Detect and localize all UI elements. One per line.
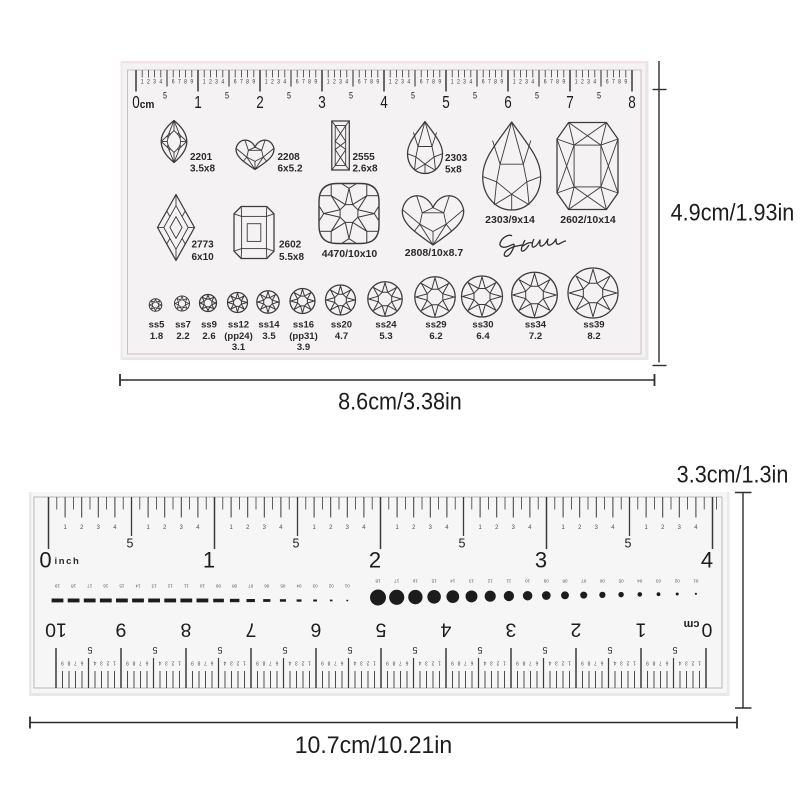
svg-text:1: 1 xyxy=(63,524,67,531)
svg-text:(pp24): (pp24) xyxy=(224,331,253,342)
svg-text:4: 4 xyxy=(483,660,486,666)
svg-text:6.4: 6.4 xyxy=(476,331,490,342)
svg-text:0: 0 xyxy=(701,618,712,640)
svg-text:3: 3 xyxy=(215,79,218,85)
svg-text:6: 6 xyxy=(420,79,423,85)
svg-text:2.6x8: 2.6x8 xyxy=(353,164,378,175)
svg-text:9: 9 xyxy=(191,660,194,666)
svg-text:5: 5 xyxy=(152,645,157,655)
svg-text:7: 7 xyxy=(659,660,662,666)
svg-text:9: 9 xyxy=(61,660,64,666)
svg-text:3: 3 xyxy=(620,660,623,666)
svg-text:1: 1 xyxy=(644,524,648,531)
svg-text:5: 5 xyxy=(473,91,477,101)
svg-text:2: 2 xyxy=(236,660,239,666)
svg-text:9: 9 xyxy=(438,79,441,85)
svg-text:8: 8 xyxy=(262,660,265,666)
svg-text:7: 7 xyxy=(364,79,367,85)
svg-text:2: 2 xyxy=(171,660,174,666)
svg-text:4: 4 xyxy=(407,79,410,85)
svg-text:4: 4 xyxy=(283,79,286,85)
svg-text:1: 1 xyxy=(141,79,144,85)
svg-text:9: 9 xyxy=(116,618,127,640)
svg-text:7: 7 xyxy=(426,79,429,85)
svg-text:8: 8 xyxy=(370,79,373,85)
svg-text:4: 4 xyxy=(158,660,161,666)
svg-text:7: 7 xyxy=(302,79,305,85)
svg-text:5: 5 xyxy=(411,91,415,101)
svg-text:2: 2 xyxy=(106,660,109,666)
svg-text:3: 3 xyxy=(339,79,342,85)
svg-text:5: 5 xyxy=(349,91,353,101)
svg-text:ss5: ss5 xyxy=(149,320,166,331)
svg-text:7: 7 xyxy=(550,79,553,85)
svg-text:8: 8 xyxy=(184,79,187,85)
svg-text:cm: cm xyxy=(683,618,699,630)
svg-text:8: 8 xyxy=(246,79,249,85)
svg-text:9: 9 xyxy=(314,79,317,85)
svg-text:4: 4 xyxy=(362,524,366,531)
svg-text:08: 08 xyxy=(232,583,238,588)
svg-text:17: 17 xyxy=(87,583,93,588)
svg-text:16: 16 xyxy=(103,583,109,588)
svg-text:09: 09 xyxy=(216,583,222,588)
svg-text:9: 9 xyxy=(376,79,379,85)
svg-text:4: 4 xyxy=(345,79,348,85)
svg-text:3: 3 xyxy=(512,524,516,531)
svg-text:3: 3 xyxy=(295,660,298,666)
svg-text:6x10: 6x10 xyxy=(192,252,215,263)
svg-text:2: 2 xyxy=(333,79,336,85)
svg-text:6: 6 xyxy=(665,660,668,666)
svg-text:3: 3 xyxy=(346,524,350,531)
svg-text:9: 9 xyxy=(451,660,454,666)
svg-text:10.7cm/10.21in: 10.7cm/10.21in xyxy=(295,732,452,759)
svg-text:1: 1 xyxy=(698,660,701,666)
svg-text:2: 2 xyxy=(581,79,584,85)
svg-text:5.3: 5.3 xyxy=(379,331,392,342)
svg-text:ss7: ss7 xyxy=(175,320,191,331)
svg-text:4470/10x10: 4470/10x10 xyxy=(322,248,378,260)
svg-text:2208: 2208 xyxy=(278,152,301,163)
svg-text:15: 15 xyxy=(119,583,125,588)
svg-text:5: 5 xyxy=(127,537,134,551)
svg-text:3: 3 xyxy=(97,524,101,531)
svg-text:7: 7 xyxy=(334,660,337,666)
svg-text:2: 2 xyxy=(369,547,381,572)
svg-text:3: 3 xyxy=(595,524,599,531)
svg-text:6: 6 xyxy=(405,660,408,666)
svg-text:4: 4 xyxy=(353,660,356,666)
svg-text:2602/10x14: 2602/10x14 xyxy=(560,214,616,226)
svg-text:1: 1 xyxy=(389,79,392,85)
svg-text:4: 4 xyxy=(418,660,421,666)
svg-text:5: 5 xyxy=(597,91,601,101)
svg-text:11: 11 xyxy=(506,578,511,583)
svg-text:3: 3 xyxy=(425,660,428,666)
svg-text:04: 04 xyxy=(637,578,643,583)
svg-text:10: 10 xyxy=(45,618,67,640)
svg-text:5: 5 xyxy=(163,91,167,101)
svg-text:08: 08 xyxy=(562,578,568,583)
svg-text:7: 7 xyxy=(139,660,142,666)
svg-text:1: 1 xyxy=(438,660,441,666)
svg-text:2: 2 xyxy=(495,524,499,531)
svg-text:7: 7 xyxy=(464,660,467,666)
svg-text:7: 7 xyxy=(246,618,257,640)
svg-text:5: 5 xyxy=(287,91,291,101)
svg-text:8: 8 xyxy=(457,660,460,666)
svg-text:3: 3 xyxy=(263,524,267,531)
svg-text:4: 4 xyxy=(221,79,224,85)
svg-text:1: 1 xyxy=(229,524,233,531)
svg-text:5.5x8: 5.5x8 xyxy=(279,252,304,263)
svg-text:8: 8 xyxy=(432,79,435,85)
svg-text:2303/9x14: 2303/9x14 xyxy=(485,214,535,226)
svg-text:0: 0 xyxy=(39,547,51,572)
svg-text:3: 3 xyxy=(555,660,558,666)
svg-text:1.8: 1.8 xyxy=(150,331,163,342)
svg-text:ss9: ss9 xyxy=(201,320,217,331)
svg-text:8: 8 xyxy=(587,660,590,666)
svg-text:2: 2 xyxy=(80,524,84,531)
svg-text:1: 1 xyxy=(113,660,116,666)
svg-text:7: 7 xyxy=(529,660,532,666)
svg-text:5: 5 xyxy=(87,645,92,655)
svg-text:4: 4 xyxy=(445,524,449,531)
svg-text:9: 9 xyxy=(500,79,503,85)
svg-text:2773: 2773 xyxy=(192,240,215,251)
svg-text:1: 1 xyxy=(194,93,202,112)
svg-text:4: 4 xyxy=(159,79,162,85)
svg-text:6: 6 xyxy=(210,660,213,666)
svg-text:4.9cm/1.93in: 4.9cm/1.93in xyxy=(671,199,795,226)
svg-text:1: 1 xyxy=(568,660,571,666)
svg-text:12: 12 xyxy=(167,583,173,588)
svg-text:5: 5 xyxy=(672,645,677,655)
svg-text:8: 8 xyxy=(132,660,135,666)
svg-text:6: 6 xyxy=(504,93,512,112)
svg-text:9: 9 xyxy=(624,79,627,85)
svg-text:10: 10 xyxy=(525,578,531,583)
svg-text:8: 8 xyxy=(628,93,636,112)
svg-text:19: 19 xyxy=(55,583,61,588)
svg-text:8.6cm/3.38in: 8.6cm/3.38in xyxy=(338,388,462,415)
svg-text:15: 15 xyxy=(431,578,437,583)
svg-text:9: 9 xyxy=(126,660,129,666)
svg-text:8: 8 xyxy=(392,660,395,666)
svg-text:1: 1 xyxy=(503,660,506,666)
svg-text:0: 0 xyxy=(132,93,140,112)
svg-text:3: 3 xyxy=(230,660,233,666)
svg-text:1: 1 xyxy=(633,660,636,666)
svg-text:12: 12 xyxy=(487,578,493,583)
svg-text:07: 07 xyxy=(581,578,587,583)
svg-text:9: 9 xyxy=(581,660,584,666)
svg-text:14: 14 xyxy=(450,578,456,583)
svg-text:14: 14 xyxy=(135,583,141,588)
svg-text:8: 8 xyxy=(197,660,200,666)
svg-text:inch: inch xyxy=(55,556,81,567)
svg-text:7: 7 xyxy=(488,79,491,85)
svg-text:2201: 2201 xyxy=(190,152,213,163)
svg-text:5: 5 xyxy=(225,91,229,101)
svg-text:8: 8 xyxy=(327,660,330,666)
svg-text:5: 5 xyxy=(347,645,352,655)
svg-text:6: 6 xyxy=(600,660,603,666)
svg-text:07: 07 xyxy=(248,583,254,588)
svg-text:6: 6 xyxy=(535,660,538,666)
svg-text:ss14: ss14 xyxy=(258,320,280,331)
svg-text:02: 02 xyxy=(328,583,334,588)
svg-text:2: 2 xyxy=(519,79,522,85)
svg-text:2: 2 xyxy=(496,660,499,666)
svg-text:7: 7 xyxy=(178,79,181,85)
svg-text:1: 1 xyxy=(265,79,268,85)
svg-text:1: 1 xyxy=(308,660,311,666)
svg-text:5: 5 xyxy=(442,93,450,112)
svg-text:3: 3 xyxy=(685,660,688,666)
svg-text:6: 6 xyxy=(358,79,361,85)
svg-text:8: 8 xyxy=(181,618,192,640)
svg-text:4: 4 xyxy=(593,79,596,85)
svg-text:2602: 2602 xyxy=(279,240,302,251)
svg-text:1: 1 xyxy=(636,618,647,640)
svg-text:1: 1 xyxy=(561,524,565,531)
svg-text:3: 3 xyxy=(506,618,517,640)
svg-text:6: 6 xyxy=(606,79,609,85)
svg-text:5: 5 xyxy=(217,645,222,655)
svg-text:2: 2 xyxy=(431,660,434,666)
svg-text:06: 06 xyxy=(264,583,270,588)
svg-text:6: 6 xyxy=(311,618,322,640)
svg-text:2: 2 xyxy=(329,524,333,531)
svg-text:1: 1 xyxy=(478,524,482,531)
svg-text:ss16: ss16 xyxy=(293,320,314,331)
svg-text:3.5: 3.5 xyxy=(262,331,276,342)
svg-text:2: 2 xyxy=(366,660,369,666)
svg-text:6: 6 xyxy=(482,79,485,85)
svg-text:1: 1 xyxy=(327,79,330,85)
svg-text:1: 1 xyxy=(373,660,376,666)
svg-text:8: 8 xyxy=(494,79,497,85)
svg-text:5: 5 xyxy=(375,618,386,640)
svg-text:3: 3 xyxy=(277,79,280,85)
svg-text:4: 4 xyxy=(440,618,451,640)
svg-text:11: 11 xyxy=(183,583,188,588)
svg-text:5: 5 xyxy=(542,645,547,655)
svg-text:2: 2 xyxy=(209,79,212,85)
svg-text:3.5x8: 3.5x8 xyxy=(190,164,215,175)
svg-text:03: 03 xyxy=(312,583,318,588)
svg-text:3: 3 xyxy=(165,660,168,666)
svg-text:13: 13 xyxy=(469,578,475,583)
svg-text:2: 2 xyxy=(395,79,398,85)
svg-text:4: 4 xyxy=(223,660,226,666)
svg-text:4: 4 xyxy=(528,524,532,531)
svg-text:5x8: 5x8 xyxy=(445,165,462,176)
svg-text:6: 6 xyxy=(544,79,547,85)
svg-text:5: 5 xyxy=(293,537,300,551)
svg-text:9: 9 xyxy=(562,79,565,85)
svg-text:09: 09 xyxy=(543,578,549,583)
svg-text:2: 2 xyxy=(457,79,460,85)
svg-text:9: 9 xyxy=(646,660,649,666)
svg-text:5: 5 xyxy=(282,645,287,655)
svg-text:2: 2 xyxy=(163,524,167,531)
svg-text:8: 8 xyxy=(556,79,559,85)
svg-text:4: 4 xyxy=(678,660,681,666)
svg-text:ss30: ss30 xyxy=(472,320,493,331)
svg-text:8.2: 8.2 xyxy=(587,331,600,342)
svg-text:3: 3 xyxy=(429,524,433,531)
svg-text:4: 4 xyxy=(469,79,472,85)
svg-text:18: 18 xyxy=(375,578,381,583)
svg-text:3: 3 xyxy=(100,660,103,666)
svg-text:1: 1 xyxy=(203,79,206,85)
svg-text:2: 2 xyxy=(626,660,629,666)
svg-text:4: 4 xyxy=(548,660,551,666)
svg-text:2555: 2555 xyxy=(353,152,376,163)
svg-text:ss34: ss34 xyxy=(525,320,547,331)
svg-text:2: 2 xyxy=(691,660,694,666)
svg-text:4: 4 xyxy=(196,524,200,531)
svg-text:3: 3 xyxy=(678,524,682,531)
svg-text:4: 4 xyxy=(380,93,388,112)
svg-text:1: 1 xyxy=(451,79,454,85)
svg-text:6: 6 xyxy=(470,660,473,666)
svg-text:2: 2 xyxy=(256,93,264,112)
svg-text:3: 3 xyxy=(525,79,528,85)
svg-text:1: 1 xyxy=(395,524,399,531)
svg-text:4: 4 xyxy=(531,79,534,85)
svg-text:3: 3 xyxy=(180,524,184,531)
svg-text:9: 9 xyxy=(252,79,255,85)
svg-text:8: 8 xyxy=(67,660,70,666)
svg-text:2: 2 xyxy=(412,524,416,531)
svg-text:2: 2 xyxy=(271,79,274,85)
svg-text:4: 4 xyxy=(694,524,698,531)
svg-text:4: 4 xyxy=(613,660,616,666)
svg-text:4: 4 xyxy=(288,660,291,666)
svg-text:10: 10 xyxy=(199,583,205,588)
svg-text:4: 4 xyxy=(611,524,615,531)
svg-text:6x5.2: 6x5.2 xyxy=(278,164,303,175)
svg-text:7: 7 xyxy=(594,660,597,666)
svg-text:9: 9 xyxy=(321,660,324,666)
svg-text:1: 1 xyxy=(513,79,516,85)
svg-text:(pp31): (pp31) xyxy=(289,331,318,342)
svg-text:2: 2 xyxy=(301,660,304,666)
svg-text:9: 9 xyxy=(516,660,519,666)
svg-text:3: 3 xyxy=(401,79,404,85)
svg-text:2.2: 2.2 xyxy=(176,331,189,342)
svg-text:2303: 2303 xyxy=(445,153,468,164)
svg-text:7: 7 xyxy=(204,660,207,666)
svg-text:01: 01 xyxy=(693,578,699,583)
svg-text:9: 9 xyxy=(190,79,193,85)
svg-text:6: 6 xyxy=(234,79,237,85)
svg-text:17: 17 xyxy=(394,578,400,583)
svg-text:6.2: 6.2 xyxy=(429,331,442,342)
svg-text:3: 3 xyxy=(360,660,363,666)
svg-text:8: 8 xyxy=(308,79,311,85)
svg-text:6: 6 xyxy=(275,660,278,666)
svg-text:ss20: ss20 xyxy=(331,320,352,331)
svg-text:7: 7 xyxy=(399,660,402,666)
svg-text:5: 5 xyxy=(412,645,417,655)
svg-text:6: 6 xyxy=(80,660,83,666)
svg-text:9: 9 xyxy=(386,660,389,666)
svg-text:03: 03 xyxy=(656,578,662,583)
svg-text:9: 9 xyxy=(256,660,259,666)
svg-text:8: 8 xyxy=(652,660,655,666)
svg-text:cm: cm xyxy=(140,99,155,111)
svg-text:3.3cm/1.3in: 3.3cm/1.3in xyxy=(677,461,789,488)
svg-text:2: 2 xyxy=(578,524,582,531)
svg-text:5: 5 xyxy=(459,537,466,551)
svg-text:2808/10x8.7: 2808/10x8.7 xyxy=(405,247,464,259)
svg-text:7: 7 xyxy=(269,660,272,666)
svg-text:2.6: 2.6 xyxy=(202,331,215,342)
svg-text:2: 2 xyxy=(561,660,564,666)
svg-text:4: 4 xyxy=(279,524,283,531)
svg-text:ss24: ss24 xyxy=(375,320,397,331)
svg-text:3.1: 3.1 xyxy=(232,342,246,353)
svg-text:2: 2 xyxy=(661,524,665,531)
svg-text:6: 6 xyxy=(145,660,148,666)
svg-text:7: 7 xyxy=(74,660,77,666)
svg-text:16: 16 xyxy=(412,578,418,583)
svg-text:4.7: 4.7 xyxy=(335,331,348,342)
svg-text:1: 1 xyxy=(146,524,150,531)
svg-text:01: 01 xyxy=(344,583,350,588)
svg-text:05: 05 xyxy=(280,583,286,588)
svg-text:3: 3 xyxy=(535,547,547,572)
svg-text:02: 02 xyxy=(674,578,680,583)
svg-text:8: 8 xyxy=(618,79,621,85)
svg-text:4: 4 xyxy=(701,547,713,572)
svg-text:5: 5 xyxy=(477,645,482,655)
svg-text:04: 04 xyxy=(296,583,302,588)
svg-text:1: 1 xyxy=(312,524,316,531)
svg-text:6: 6 xyxy=(296,79,299,85)
svg-text:ss39: ss39 xyxy=(583,320,604,331)
svg-text:7: 7 xyxy=(566,93,574,112)
svg-text:7.2: 7.2 xyxy=(529,331,542,342)
svg-text:5: 5 xyxy=(625,537,632,551)
svg-text:13: 13 xyxy=(151,583,157,588)
svg-text:06: 06 xyxy=(599,578,605,583)
svg-text:2: 2 xyxy=(571,618,582,640)
svg-text:3: 3 xyxy=(153,79,156,85)
svg-text:2: 2 xyxy=(246,524,250,531)
svg-text:ss12: ss12 xyxy=(228,320,249,331)
svg-text:2: 2 xyxy=(147,79,150,85)
svg-text:6: 6 xyxy=(172,79,175,85)
svg-text:3: 3 xyxy=(490,660,493,666)
svg-text:6: 6 xyxy=(340,660,343,666)
svg-text:3: 3 xyxy=(463,79,466,85)
svg-text:ss29: ss29 xyxy=(425,320,446,331)
svg-text:7: 7 xyxy=(240,79,243,85)
svg-text:3.9: 3.9 xyxy=(297,342,310,353)
svg-text:5: 5 xyxy=(607,645,612,655)
svg-text:5: 5 xyxy=(535,91,539,101)
svg-text:05: 05 xyxy=(618,578,624,583)
svg-text:3: 3 xyxy=(318,93,326,112)
svg-text:1: 1 xyxy=(575,79,578,85)
